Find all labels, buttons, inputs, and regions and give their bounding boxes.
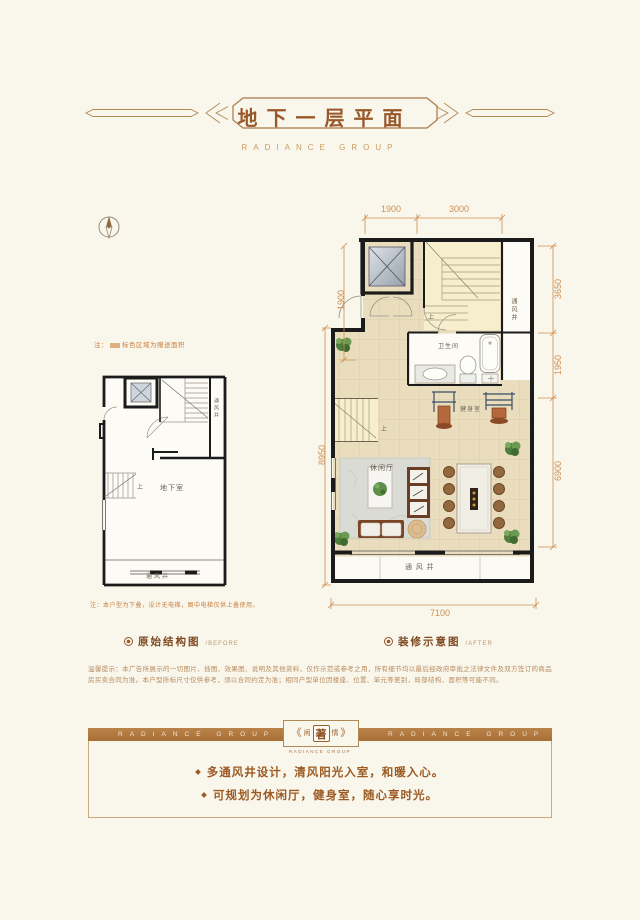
- gift-area-note: 注：标色区域为赠送面积: [94, 339, 185, 349]
- caption-dot-icon: [384, 637, 393, 646]
- after-floorplan: [320, 200, 570, 630]
- emblem-char-center: 著: [313, 725, 330, 742]
- emblem-subtext: RADIANCE GROUP: [283, 749, 357, 754]
- feature-bullet-1: 多通风井设计，清风阳光入室，和暖入心。: [88, 764, 552, 780]
- after-stairs-up-2: 上: [381, 424, 388, 433]
- shelf: [407, 467, 430, 518]
- before-vent-shaft-bottom-label: 通风井: [146, 571, 170, 580]
- after-vent-shaft-right-label: 通风井: [509, 298, 518, 322]
- note-prefix: 注：: [94, 342, 108, 349]
- dim-left-outer: 8950: [317, 433, 327, 477]
- band-brand-right: RADIANCE GROUP: [388, 731, 545, 738]
- dim-top-2: 3000: [439, 204, 479, 214]
- after-stairs-up-1: 上: [428, 312, 435, 321]
- dim-left-inner: 1900: [336, 278, 346, 322]
- band-brand-left: RADIANCE GROUP: [118, 731, 275, 738]
- page-title: 地下一层平面: [0, 102, 640, 131]
- before-bottom-note: 注：本户型为下叠，设计无电梯，图中电梯仅供上叠使用。: [90, 600, 259, 609]
- after-vent-shaft-bottom-label: 通 风 井: [405, 562, 435, 572]
- dim-bottom: 7100: [413, 608, 467, 618]
- compass-icon: [94, 212, 124, 242]
- feature-bullet-2: 可规划为休闲厅，健身室，随心享时光。: [88, 787, 552, 803]
- before-caption: 原始结构图 /BEFORE: [124, 634, 239, 649]
- dim-right-3: 6900: [553, 449, 563, 493]
- gift-area-swatch: [110, 343, 120, 348]
- feature-text-1: 多通风井设计，清风阳光入室，和暖入心。: [207, 764, 445, 780]
- after-bathroom-label: 卫生间: [438, 341, 459, 350]
- before-room-label: 地下室: [160, 483, 184, 493]
- dim-top-1: 1900: [371, 204, 411, 214]
- before-vent-shaft-right-label: 通风井: [212, 398, 219, 419]
- after-gym-label: 健身室: [460, 404, 481, 413]
- before-caption-title: 原始结构图: [138, 634, 201, 649]
- emblem-wing-right: 》: [341, 729, 351, 739]
- before-stairs-up-label: 上: [137, 482, 144, 491]
- disclaimer-text: 温馨提示：本广告所展示的一切图片、插图、效果图、说明及其他资料，仅作示范或参考之…: [88, 664, 552, 686]
- round-rug: [408, 520, 426, 538]
- after-caption-title: 装修示意图: [398, 634, 461, 649]
- dim-right-2: 1950: [553, 343, 563, 387]
- after-caption: 装修示意图 /AFTER: [384, 634, 493, 649]
- note-text: 标色区域为赠送面积: [122, 342, 185, 349]
- feature-text-2: 可规划为休闲厅，健身室，随心享时光。: [213, 787, 438, 803]
- sofa: [358, 520, 404, 538]
- after-lounge-label: 休闲厅: [370, 463, 394, 473]
- dim-right-1: 3650: [553, 267, 563, 311]
- before-caption-tag: /BEFORE: [206, 641, 239, 647]
- diamond-bullet-icon: [201, 792, 207, 798]
- after-caption-tag: /AFTER: [466, 641, 493, 647]
- emblem-char-right: 情: [332, 730, 339, 737]
- before-floorplan: [90, 360, 240, 595]
- caption-dot-icon: [124, 637, 133, 646]
- brand-emblem: 《 闲 著 情 》: [283, 720, 359, 747]
- emblem-char-left: 闲: [304, 730, 311, 737]
- dining-table: [457, 464, 491, 533]
- diamond-bullet-icon: [195, 769, 201, 775]
- emblem-wing-left: 《: [292, 729, 302, 739]
- brand-subtitle: RADIANCE GROUP: [0, 143, 640, 152]
